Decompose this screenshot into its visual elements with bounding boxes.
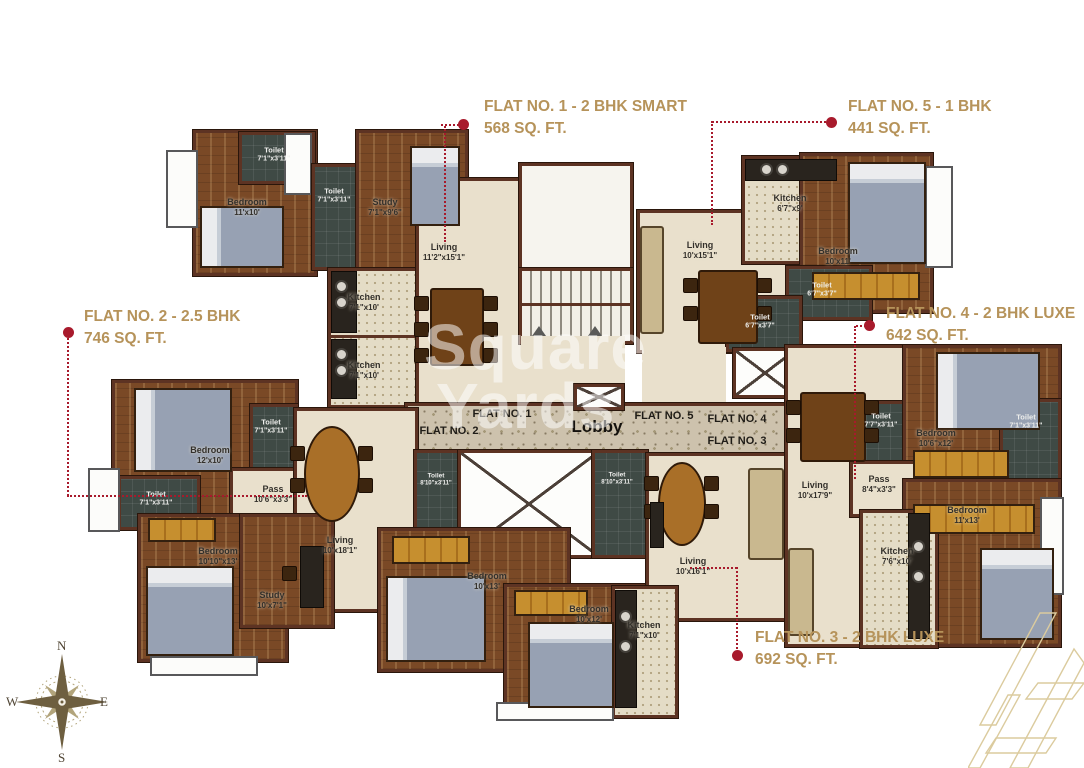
compass-n: N <box>57 638 66 654</box>
label-f2-living: Living10'x18'1" <box>323 535 357 555</box>
label-f2-toilet-a: Toilet7'1"x3'11" <box>255 418 288 435</box>
leader-line-flat1-v <box>444 126 446 242</box>
callout-flat2: FLAT NO. 2 - 2.5 BHK746 SQ. FT. <box>84 306 240 351</box>
stove-burner <box>760 163 773 176</box>
stove-burner <box>912 570 925 583</box>
compass-w: W <box>6 694 18 710</box>
room-f3-toilet-b <box>592 450 648 558</box>
leader-line-flat5-v <box>711 121 713 225</box>
stove-burner <box>619 640 632 653</box>
label-f3-toilet-b: Toilet8'10"x3'11" <box>601 472 633 487</box>
label-f2-bedroom-a: Bedroom12'x10' <box>190 445 230 465</box>
label-f3-kitchen: Kitchen7'1"x10' <box>627 620 660 640</box>
label-f5-living: Living10'x15'1" <box>683 240 717 260</box>
chair <box>683 278 698 293</box>
chair <box>864 428 879 443</box>
callout-flat5: FLAT NO. 5 - 1 BHK441 SQ. FT. <box>848 96 992 141</box>
label-f5-kitchen: Kitchen6'7"x9' <box>773 193 806 213</box>
lobby-tag-flat4: FLAT NO. 4 <box>707 413 766 425</box>
leader-dot-flat2 <box>63 327 74 338</box>
chair <box>644 476 659 491</box>
dining-table <box>658 462 706 546</box>
stair-divider <box>522 303 630 306</box>
balcony <box>88 468 120 532</box>
stove-burner <box>335 364 348 377</box>
callout-flat1: FLAT NO. 1 - 2 BHK SMART568 SQ. FT. <box>484 96 687 141</box>
sofa <box>748 468 784 560</box>
brand-watermark: SquareYards <box>424 318 647 436</box>
stair-landing <box>519 163 633 276</box>
leader-line-flat3-v <box>736 567 738 649</box>
lobby-tag-flat3: FLAT NO. 3 <box>707 435 766 447</box>
bed <box>146 566 234 656</box>
label-f1-toilet-b: Toilet7'1"x3'11" <box>318 187 351 204</box>
leader-dot-flat3 <box>732 650 743 661</box>
f5-foyer <box>642 347 726 403</box>
label-f5-toilet-a: Toilet6'7"x3'7" <box>807 281 836 298</box>
stove-burner <box>776 163 789 176</box>
leader-line-flat2-h <box>67 495 307 497</box>
bed <box>528 622 614 708</box>
chair <box>704 476 719 491</box>
leader-dot-flat5 <box>826 117 837 128</box>
label-f4-toilet-b: Toilet7'1"x3'11" <box>1010 413 1043 430</box>
label-f2-pass: Pass10'6"x3'3" <box>254 484 292 504</box>
dining-table <box>800 392 866 462</box>
kitchen-counter <box>745 159 837 181</box>
bed <box>848 162 926 264</box>
label-f4-bedroom-a: Bedroom10'6"x12' <box>916 428 956 448</box>
callout-flat4: FLAT NO. 4 - 2 BHK LUXE642 SQ. FT. <box>886 303 1075 348</box>
callout-flat3: FLAT NO. 3 - 2 BHK LUXE692 SQ. FT. <box>755 627 944 672</box>
label-f1-living: Living11'2"x15'1" <box>423 242 465 262</box>
label-f4-kitchen: Kitchen7'6"x10' <box>880 546 913 566</box>
label-f5-toilet-b: Toilet6'7"x3'7" <box>745 313 774 330</box>
wardrobe <box>392 536 470 564</box>
chair <box>290 478 305 493</box>
leader-line-flat4-v <box>854 326 856 479</box>
leader-dot-flat1 <box>458 119 469 130</box>
wardrobe <box>148 518 216 542</box>
label-f5-bedroom: Bedroom10'x11' <box>818 246 858 266</box>
label-f4-toilet-a: Toilet7'7"x3'11" <box>865 412 898 429</box>
label-f3-living: Living10'x16'1" <box>676 556 710 576</box>
chair <box>358 478 373 493</box>
chair <box>757 278 772 293</box>
chair <box>358 446 373 461</box>
tv-unit <box>650 502 664 548</box>
balcony <box>150 656 258 676</box>
stove-burner <box>335 348 348 361</box>
label-f3-bedroom-b: Bedroom10'x12' <box>569 604 609 624</box>
balcony <box>166 150 198 228</box>
stove-burner <box>335 296 348 309</box>
label-f1-kitchen: Kitchen7'1"x10' <box>347 292 380 312</box>
leader-line-flat4-h <box>856 325 866 327</box>
stove-burner <box>912 540 925 553</box>
label-f4-bedroom-b: Bedroom11'x13' <box>947 505 987 525</box>
chair <box>483 296 498 311</box>
label-f4-living: Living10'x17'9" <box>798 480 832 500</box>
chair <box>414 296 429 311</box>
leader-line-flat2-v <box>67 338 69 496</box>
sofa <box>788 548 814 636</box>
leader-line-flat5-h <box>712 121 826 123</box>
label-f2-study: Study10'x7'1" <box>257 590 287 610</box>
dining-table <box>698 270 758 344</box>
floor-plan: Toilet7'1"x3'11" Bedroom11'x10' Toilet7'… <box>0 0 1084 768</box>
duct-box <box>284 133 312 195</box>
chair <box>786 428 801 443</box>
compass-e: E <box>100 694 108 710</box>
label-f2-kitchen: Kitchen7'1"x10' <box>347 360 380 380</box>
chair <box>683 306 698 321</box>
dining-table <box>304 426 360 522</box>
study-desk <box>300 546 324 608</box>
chair <box>704 504 719 519</box>
chair <box>290 446 305 461</box>
logo-motif <box>968 583 1084 768</box>
chair <box>786 400 801 415</box>
compass-star <box>14 652 110 752</box>
label-f2-toilet-b: Toilet7'1"x3'11" <box>140 490 173 507</box>
leader-line-flat3-h <box>690 567 737 569</box>
kitchen-divider-wall <box>331 335 419 338</box>
label-f3-toilet-a: Toilet8'10"x3'11" <box>420 473 452 488</box>
stove-burner <box>335 280 348 293</box>
bed <box>410 146 460 226</box>
label-f1-bedroom: Bedroom11'x10' <box>227 197 267 217</box>
compass-s: S <box>58 750 65 766</box>
balcony <box>925 166 953 268</box>
chair <box>282 566 297 581</box>
room-f1-toilet-b <box>312 164 362 270</box>
label-f4-pass: Pass8'4"x3'3" <box>862 474 896 494</box>
wardrobe <box>913 450 1009 478</box>
label-f3-bedroom-a: Bedroom10'x13' <box>467 571 507 591</box>
compass-rose: N E S W <box>0 630 120 768</box>
label-f2-bedroom-b: Bedroom10'10"x13' <box>198 546 238 566</box>
label-f1-toilet-a: Toilet7'1"x3'11" <box>258 146 291 163</box>
label-f1-study: Study7'1"x9'6" <box>368 197 402 217</box>
